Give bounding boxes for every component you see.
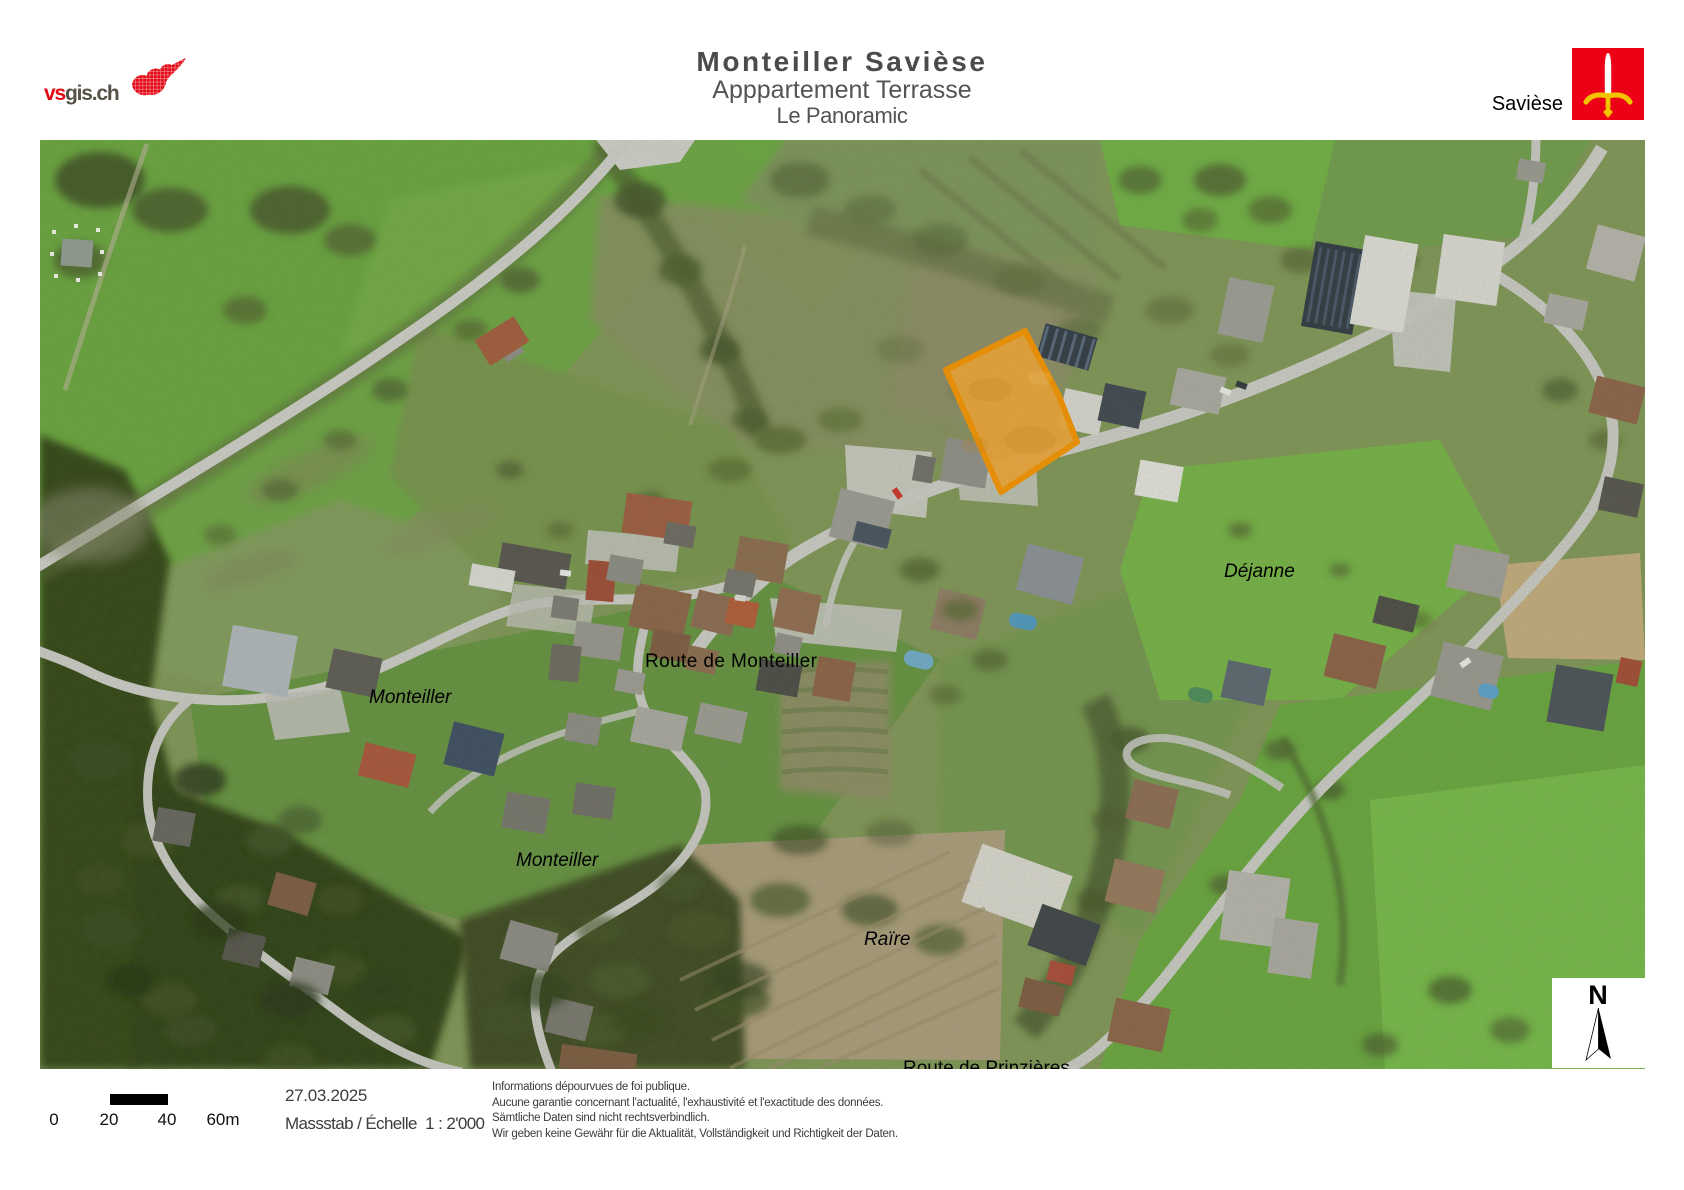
svg-text:Raïre: Raïre xyxy=(864,929,910,950)
svg-text:Route de Monteiller: Route de Monteiller xyxy=(645,651,818,672)
svg-text:Déjanne: Déjanne xyxy=(1224,561,1295,582)
svg-text:Monteiller: Monteiller xyxy=(369,687,452,708)
svg-text:Route de Prinzières: Route de Prinzières xyxy=(903,1058,1070,1069)
svg-text:Monteiller: Monteiller xyxy=(516,850,599,871)
